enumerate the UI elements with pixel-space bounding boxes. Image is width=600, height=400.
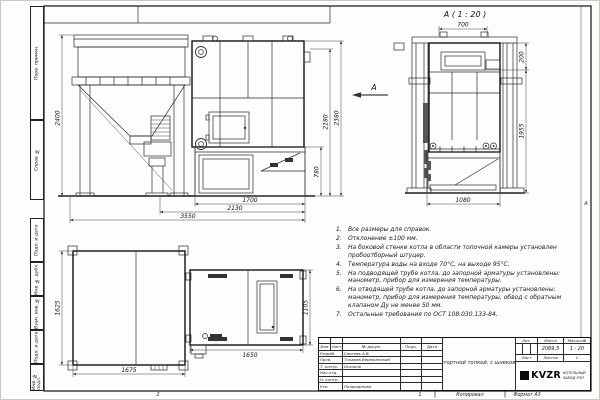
strip-podp-data-2: Подп. и дата <box>30 330 44 364</box>
front-bunker <box>72 35 190 196</box>
dim-collar-height: 200 <box>519 51 526 63</box>
tb-sign-cell <box>401 383 422 390</box>
drawing-sheet: 2400 780 2180 2380 1700 2130 3550 <box>0 0 600 400</box>
tb-sign-cell <box>401 377 422 384</box>
dim-bottom-width: 1080 <box>455 197 470 204</box>
side-firebox <box>427 152 500 193</box>
note-2: 2.Отклонение ±100 мм. <box>336 235 583 243</box>
zone-label-1: 1 <box>418 392 421 398</box>
strip-sprav-no: Справ. № <box>30 120 44 200</box>
dim-overall-width: 3550 <box>180 213 195 220</box>
dim-plan-boiler-depth: 1105 <box>303 300 310 315</box>
note-1: 1.Все размеры для справок. <box>336 226 583 234</box>
kvzr-logo-text: KVZR <box>531 370 561 381</box>
company-logo: KVZR КОТЕЛЬНЫЙ ЗАВОД РЭП <box>516 362 590 390</box>
zone-label-A: А <box>583 201 587 207</box>
document-title: Котел КВм-0,6 КБД (с ретортной топкой, с… <box>443 338 516 390</box>
dim-bunker-width: 1675 <box>121 367 136 374</box>
dim-side-body-height: 1955 <box>519 123 526 138</box>
tb-role-nkontr: Н. контр. <box>319 377 343 384</box>
dim-plan-boiler-width: 1650 <box>242 352 257 359</box>
front-boiler-body <box>192 36 310 150</box>
tb-role-utv: Утв. <box>319 383 343 390</box>
zone-label-2: 2 <box>156 392 159 398</box>
dim-bunker-height: 2400 <box>55 110 62 125</box>
note-7: 7.Остальные требования по ОСТ 108.030.13… <box>336 311 583 319</box>
tb-lit-cell <box>531 344 538 355</box>
side-view: А ( 1 : 20 ) <box>394 10 529 207</box>
kvzr-logo-icon <box>520 371 529 380</box>
tb-lit-cell <box>523 344 530 355</box>
note-3: 3.На боковой стенке котла в области топо… <box>336 244 583 260</box>
dim-boiler-width: 2130 <box>227 205 242 212</box>
strip-perv-primen: Перв. примен. <box>30 6 44 120</box>
front-firebox <box>195 147 305 196</box>
plan-view: 1625 1675 1650 1105 <box>55 246 314 377</box>
dim-firebox-width: 1700 <box>242 197 257 204</box>
dim-body-height: 2180 <box>323 114 330 129</box>
strip-podp-data-1: Подп. и дата <box>30 218 44 262</box>
plan-bunker <box>68 246 188 370</box>
plan-boiler <box>186 270 306 358</box>
title-block: Изм Лист № докум. Подп. Дата Разраб. Сер… <box>318 337 591 391</box>
dim-bunker-depth: 1625 <box>55 300 62 315</box>
tb-lit-cell <box>516 344 523 355</box>
format-label: Формат А3 <box>513 392 540 398</box>
boiler-door <box>209 112 249 143</box>
side-dimensions: 700 200 1955 1080 <box>427 22 529 208</box>
side-view-title: А ( 1 : 20 ) <box>443 10 486 19</box>
copied-label: Копировал <box>456 392 483 398</box>
front-screw-feeder <box>130 116 171 196</box>
tb-name-utv: Поликарпова <box>343 383 401 390</box>
front-dimensions: 2400 780 2180 2380 1700 2130 3550 <box>55 35 345 223</box>
tb-scale-value: 1 : 20 <box>564 344 590 355</box>
note-5: 5.На подводящей трубе котла, до запорной… <box>336 270 583 286</box>
strip-inv-podl: Инв. № подл. <box>30 364 44 391</box>
dim-total-height: 2380 <box>334 110 341 125</box>
dim-firebox-height: 780 <box>314 166 321 178</box>
strip-vzam-inv: Взам. инв. № <box>30 296 44 330</box>
note-4: 4.Температура воды на входе 70°С, на вых… <box>336 261 583 269</box>
company-name: КОТЕЛЬНЫЙ ЗАВОД РЭП <box>563 371 586 380</box>
strip-inv-dubl: Инв. № дубл. <box>30 262 44 296</box>
tb-date-cell <box>422 383 443 390</box>
view-arrow-label: А <box>370 83 376 92</box>
technical-notes: 1.Все размеры для справок. 2.Отклонение … <box>336 226 583 320</box>
view-arrow-A: А <box>352 83 388 98</box>
note-6: 6.На отводящей трубе котла, до запорной … <box>336 286 583 310</box>
tb-name-nkontr <box>343 377 401 384</box>
front-view: 2400 780 2180 2380 1700 2130 3550 <box>55 35 389 223</box>
tb-mass-value: 2069,5 <box>538 344 564 355</box>
dim-top-width: 700 <box>457 22 469 29</box>
tb-date-cell <box>422 377 443 384</box>
